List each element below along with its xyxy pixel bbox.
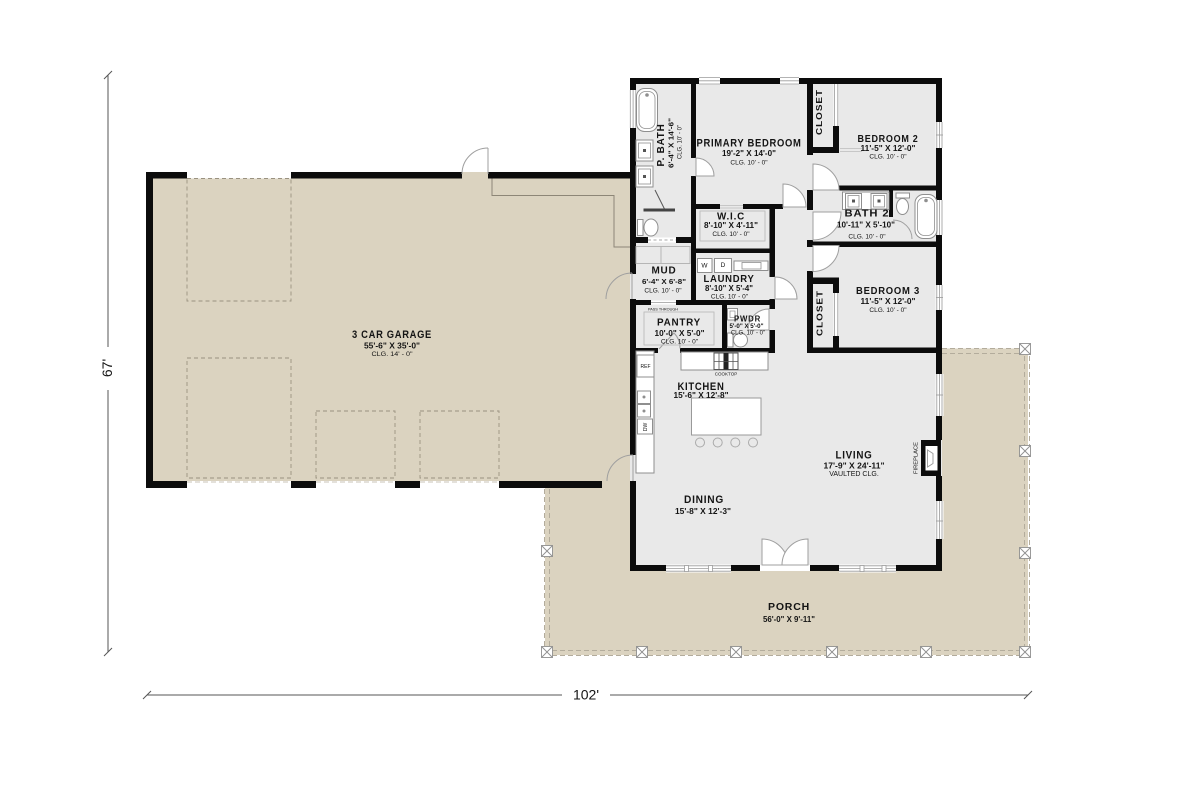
svg-text:REF: REF bbox=[641, 364, 651, 370]
svg-text:8'-10" X 5'-4": 8'-10" X 5'-4" bbox=[705, 284, 753, 293]
svg-text:PORCH: PORCH bbox=[768, 601, 810, 613]
svg-text:BEDROOM 3: BEDROOM 3 bbox=[856, 286, 920, 297]
svg-text:6'-4" X 6'-8": 6'-4" X 6'-8" bbox=[642, 277, 686, 286]
svg-text:10'-0" X 5'-0": 10'-0" X 5'-0" bbox=[655, 329, 705, 338]
svg-text:CLOSET: CLOSET bbox=[815, 89, 824, 135]
svg-text:CLG. 10' - 0": CLG. 10' - 0" bbox=[869, 307, 907, 314]
svg-text:MUD: MUD bbox=[652, 266, 677, 277]
svg-text:6'-4" X 14'-6": 6'-4" X 14'-6" bbox=[667, 118, 676, 168]
svg-text:COOKTOP: COOKTOP bbox=[715, 372, 737, 377]
svg-text:CLG. 10' - 0": CLG. 10' - 0" bbox=[678, 125, 684, 159]
svg-text:11'-5" X 12'-0": 11'-5" X 12'-0" bbox=[861, 144, 916, 153]
svg-text:FIREPLACE: FIREPLACE bbox=[914, 441, 920, 474]
svg-text:W: W bbox=[701, 263, 708, 270]
svg-text:CLG. 10' - 0": CLG. 10' - 0" bbox=[730, 160, 768, 167]
svg-text:PRIMARY BEDROOM: PRIMARY BEDROOM bbox=[697, 138, 802, 150]
svg-text:BATH 2: BATH 2 bbox=[845, 209, 890, 220]
svg-text:CLOSET: CLOSET bbox=[816, 290, 825, 336]
svg-text:D: D bbox=[721, 262, 726, 269]
svg-text:CLG. 10' - 0": CLG. 10' - 0" bbox=[661, 339, 699, 346]
svg-text:10'-11" X 5'-10": 10'-11" X 5'-10" bbox=[837, 221, 895, 230]
svg-text:102': 102' bbox=[573, 687, 599, 703]
svg-text:15'-8" X 12'-3": 15'-8" X 12'-3" bbox=[675, 507, 731, 516]
svg-text:PASS THROUGH: PASS THROUGH bbox=[648, 308, 678, 312]
svg-text:11'-5" X 12'-0": 11'-5" X 12'-0" bbox=[861, 297, 916, 306]
svg-text:55'-6" X 35'-0": 55'-6" X 35'-0" bbox=[364, 342, 420, 351]
svg-text:56'-0" X 9'-11": 56'-0" X 9'-11" bbox=[763, 615, 815, 624]
svg-text:CLG. 14' - 0": CLG. 14' - 0" bbox=[372, 351, 414, 358]
svg-text:17'-9" X 24'-11": 17'-9" X 24'-11" bbox=[824, 462, 885, 471]
svg-text:VAULTED CLG.: VAULTED CLG. bbox=[829, 471, 879, 478]
svg-text:3 CAR GARAGE: 3 CAR GARAGE bbox=[352, 329, 432, 341]
svg-text:15'-6" X 12'-8": 15'-6" X 12'-8" bbox=[674, 391, 729, 400]
svg-text:CLG. 10' - 0": CLG. 10' - 0" bbox=[712, 231, 750, 238]
svg-text:67': 67' bbox=[99, 359, 115, 377]
svg-text:DINING: DINING bbox=[684, 494, 724, 506]
svg-text:CLG. 10' - 0": CLG. 10' - 0" bbox=[644, 288, 682, 295]
svg-text:19'-2" X 14'-0": 19'-2" X 14'-0" bbox=[722, 149, 776, 158]
svg-text:8'-10" X 4'-11": 8'-10" X 4'-11" bbox=[704, 221, 758, 230]
svg-text:P. BATH: P. BATH bbox=[656, 124, 667, 167]
svg-text:PWDR: PWDR bbox=[734, 315, 761, 324]
svg-text:5'-0" X 5'-0": 5'-0" X 5'-0" bbox=[730, 324, 764, 330]
svg-text:DW: DW bbox=[643, 423, 649, 432]
svg-text:CLG. 10' - 0": CLG. 10' - 0" bbox=[848, 234, 886, 241]
svg-text:CLG. 10' - 0": CLG. 10' - 0" bbox=[711, 294, 749, 301]
svg-text:PANTRY: PANTRY bbox=[657, 317, 701, 329]
svg-text:CLG. 10' - 0": CLG. 10' - 0" bbox=[869, 154, 907, 161]
svg-text:LIVING: LIVING bbox=[836, 450, 873, 462]
svg-text:CLG. 10' - 0": CLG. 10' - 0" bbox=[731, 331, 765, 337]
